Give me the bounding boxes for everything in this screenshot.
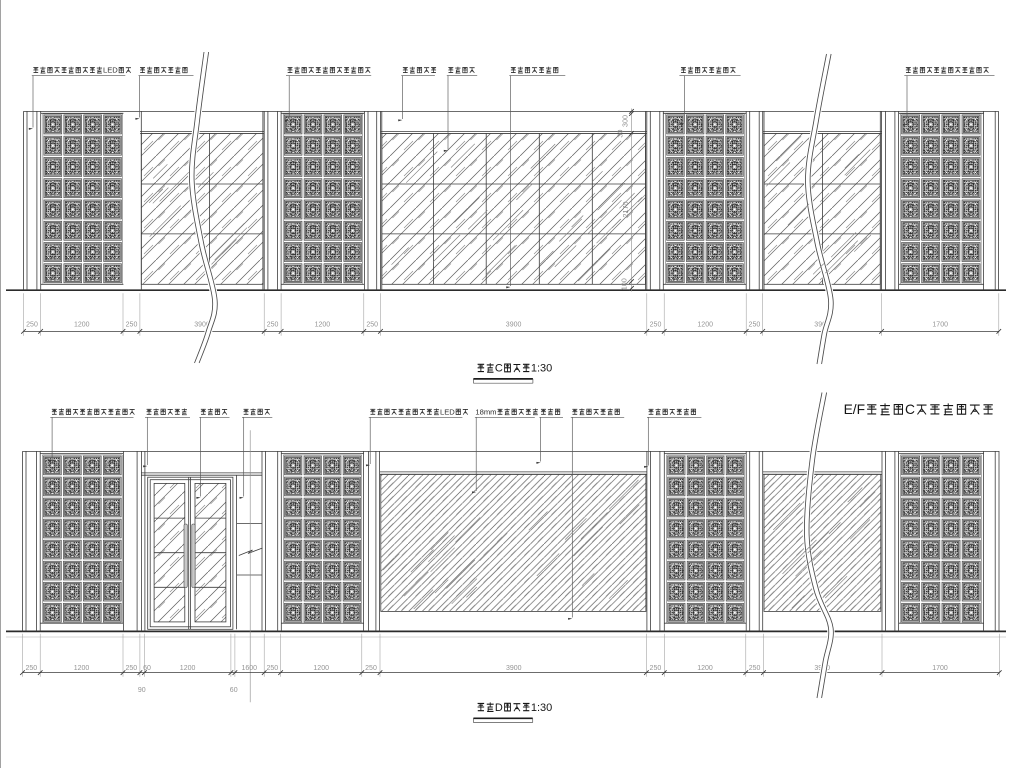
- svg-text:1200: 1200: [697, 665, 713, 672]
- svg-text:1200: 1200: [697, 321, 713, 328]
- svg-text:250: 250: [749, 665, 761, 672]
- svg-text:1200: 1200: [180, 665, 196, 672]
- svg-text:1200: 1200: [313, 665, 329, 672]
- svg-text:1200: 1200: [315, 321, 331, 328]
- svg-text:1200: 1200: [74, 321, 90, 328]
- svg-text:2170: 2170: [621, 202, 630, 218]
- svg-text:60: 60: [230, 687, 238, 694]
- svg-text:1600: 1600: [242, 665, 258, 672]
- svg-text:30: 30: [616, 130, 625, 138]
- svg-text:250: 250: [650, 321, 662, 328]
- svg-text:1200: 1200: [74, 665, 90, 672]
- svg-text:1700: 1700: [932, 665, 948, 672]
- svg-text:D: D: [495, 702, 503, 714]
- svg-text:LED: LED: [440, 407, 455, 416]
- svg-text:250: 250: [25, 665, 37, 672]
- svg-text:LED: LED: [103, 66, 118, 75]
- svg-text:1:30: 1:30: [531, 702, 552, 714]
- svg-text:250: 250: [125, 665, 137, 672]
- svg-text:3900: 3900: [506, 665, 522, 672]
- svg-text:250: 250: [365, 665, 377, 672]
- svg-text:100: 100: [619, 278, 628, 290]
- svg-text:250: 250: [749, 321, 761, 328]
- svg-text:1:30: 1:30: [531, 363, 552, 375]
- svg-text:60: 60: [143, 665, 151, 672]
- svg-text:250: 250: [650, 665, 662, 672]
- svg-text:C: C: [495, 363, 503, 375]
- svg-text:250: 250: [126, 321, 138, 328]
- svg-text:3900: 3900: [506, 321, 522, 328]
- svg-text:E/F: E/F: [844, 402, 865, 417]
- svg-text:C: C: [905, 402, 915, 417]
- svg-text:90: 90: [138, 687, 146, 694]
- svg-text:250: 250: [366, 321, 378, 328]
- svg-text:250: 250: [26, 321, 38, 328]
- svg-text:300: 300: [621, 115, 630, 127]
- svg-text:1700: 1700: [932, 321, 948, 328]
- svg-text:18mm: 18mm: [475, 407, 496, 416]
- svg-text:250: 250: [266, 665, 278, 672]
- svg-text:250: 250: [267, 321, 279, 328]
